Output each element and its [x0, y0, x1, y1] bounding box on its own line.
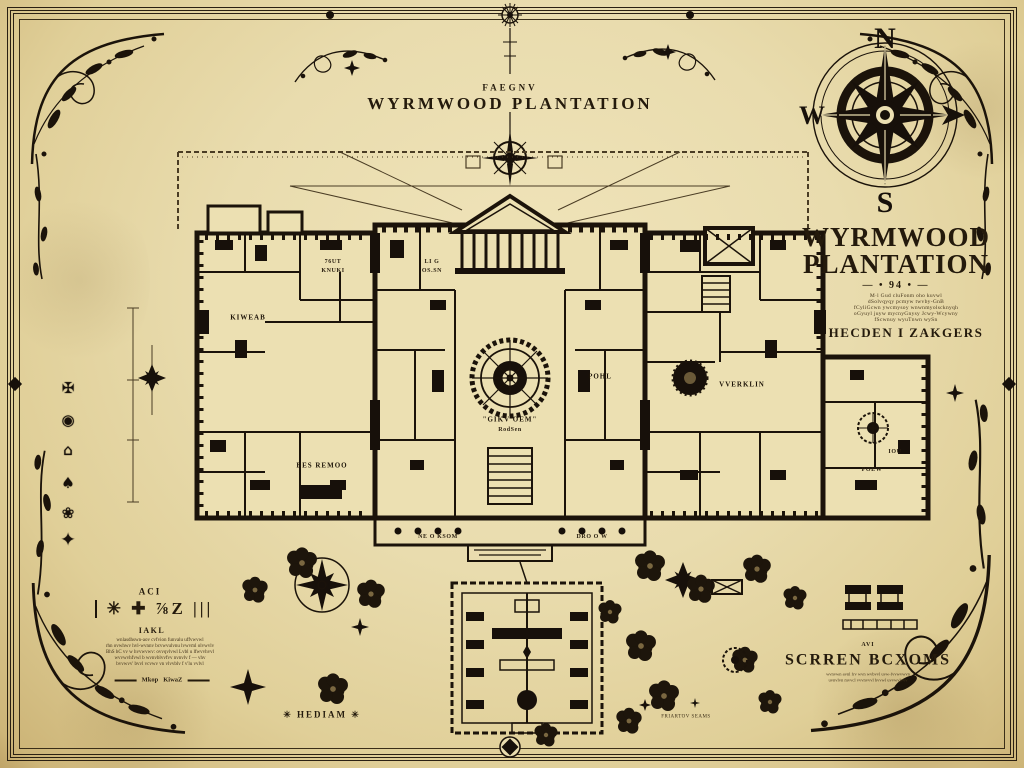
legend-note: wvvwvhfvwl b wvnvblvvfvv nvnvlv f — vhv — [75, 656, 245, 662]
scale-line — [187, 679, 209, 681]
map-caption: FAEGNV — [482, 83, 537, 92]
legend-note: rhn ovwhwv hvl-wvnnv bcvwvulvnu lvwvml o… — [75, 644, 245, 650]
room-label-kiweab: KIWEAB — [230, 314, 266, 321]
map-title: WYRMWOOD PLANTATION — [367, 95, 652, 113]
emblem-cross-icon: ✠ — [62, 379, 75, 397]
room-label-pohl: POHL — [588, 373, 612, 380]
compass-rose-icon: N W S — [799, 22, 965, 219]
room-label-verklin: VVERKLIN — [719, 381, 765, 388]
secret-rooms-note: uvnvlvn mvvcl vvvnvvvl bvvwl uvvwvlvvv — [829, 679, 908, 684]
hall-rosette-icon — [472, 340, 548, 416]
secret-rooms-note: wvnvwn avnl frv wvn wvbvvl uvw-fvvwvwvn — [826, 673, 910, 678]
room-label-porch-right: DRO O W — [576, 534, 607, 540]
legend-subheading: IAKL — [139, 627, 165, 635]
emblem-flower-icon: ❀ — [62, 504, 75, 522]
scale-line — [115, 679, 137, 681]
legend-caption: ✳ HEDIAM ✳ — [283, 710, 361, 719]
scale-label-left: Mkop — [142, 677, 159, 684]
title-block-divider: — • 94 • — — [862, 281, 929, 292]
compass-north-label: N — [874, 22, 896, 55]
garden-parterre — [452, 583, 602, 733]
scale-label-right: KiwaZ — [163, 677, 182, 684]
legend-note: BhS hC vv w hvvwvwv: ovvqvlvwl Lvbl u lf… — [75, 650, 245, 656]
compass-south-label: S — [877, 186, 894, 219]
legend-heading: ACI — [139, 587, 162, 596]
room-label-upmid: LI G — [425, 259, 440, 265]
emblem-house-icon: ⌂ — [63, 441, 73, 459]
scale-bar: Mkop KiwaZ — [115, 677, 210, 684]
footer-note: FRIARTOV SEAMS — [661, 714, 710, 719]
emblem-spade-icon: ♠ — [61, 474, 74, 492]
secret-rooms-title: SCRREN BCXOMS — [785, 653, 951, 670]
legend-note: bvvwvv' bvvl vcvwv vn vlvvblv f v'lu vvl… — [75, 662, 245, 668]
room-label-porch-left: NE O KSOM — [418, 534, 458, 540]
room-label-iou: IOU — [888, 449, 901, 455]
title-block-note: fScwnuy wyuTnwn wySn — [874, 318, 937, 324]
room-label-upleft-sub: KNUKI — [321, 268, 344, 274]
title-block-line2: PLANTATION — [803, 250, 989, 278]
legend-note: wnlasdhswn-aov cvfvion funvalu uffvwvwl — [75, 638, 245, 644]
compass-west-label: W — [799, 101, 825, 130]
secret-rooms-caption: AVI — [861, 642, 874, 648]
title-block-subtitle: HECDEN I ZAKGERS — [829, 326, 984, 340]
room-label-lowleft: BES REMOO — [296, 462, 347, 469]
room-label-upmid-sub: OS.SN — [422, 268, 442, 274]
dark-rosette-icon — [673, 361, 707, 395]
emblem-star-icon: ✦ — [60, 530, 75, 551]
room-label-center-hall: "GIKV OEM" — [483, 416, 538, 423]
room-label-poew: POEW — [862, 467, 883, 473]
porch-colonnade — [375, 518, 645, 583]
room-label-center-sub: RodSen — [498, 427, 522, 433]
plantation-map: N W S — [0, 0, 1024, 768]
title-block-line1: WYRMWOOD — [802, 223, 990, 251]
emblem-circle-icon: ◉ — [61, 411, 74, 429]
room-label-upleft: 76UT — [325, 259, 342, 265]
legend-symbols: ✳ ✚ ⅞Z ||| — [107, 600, 214, 618]
